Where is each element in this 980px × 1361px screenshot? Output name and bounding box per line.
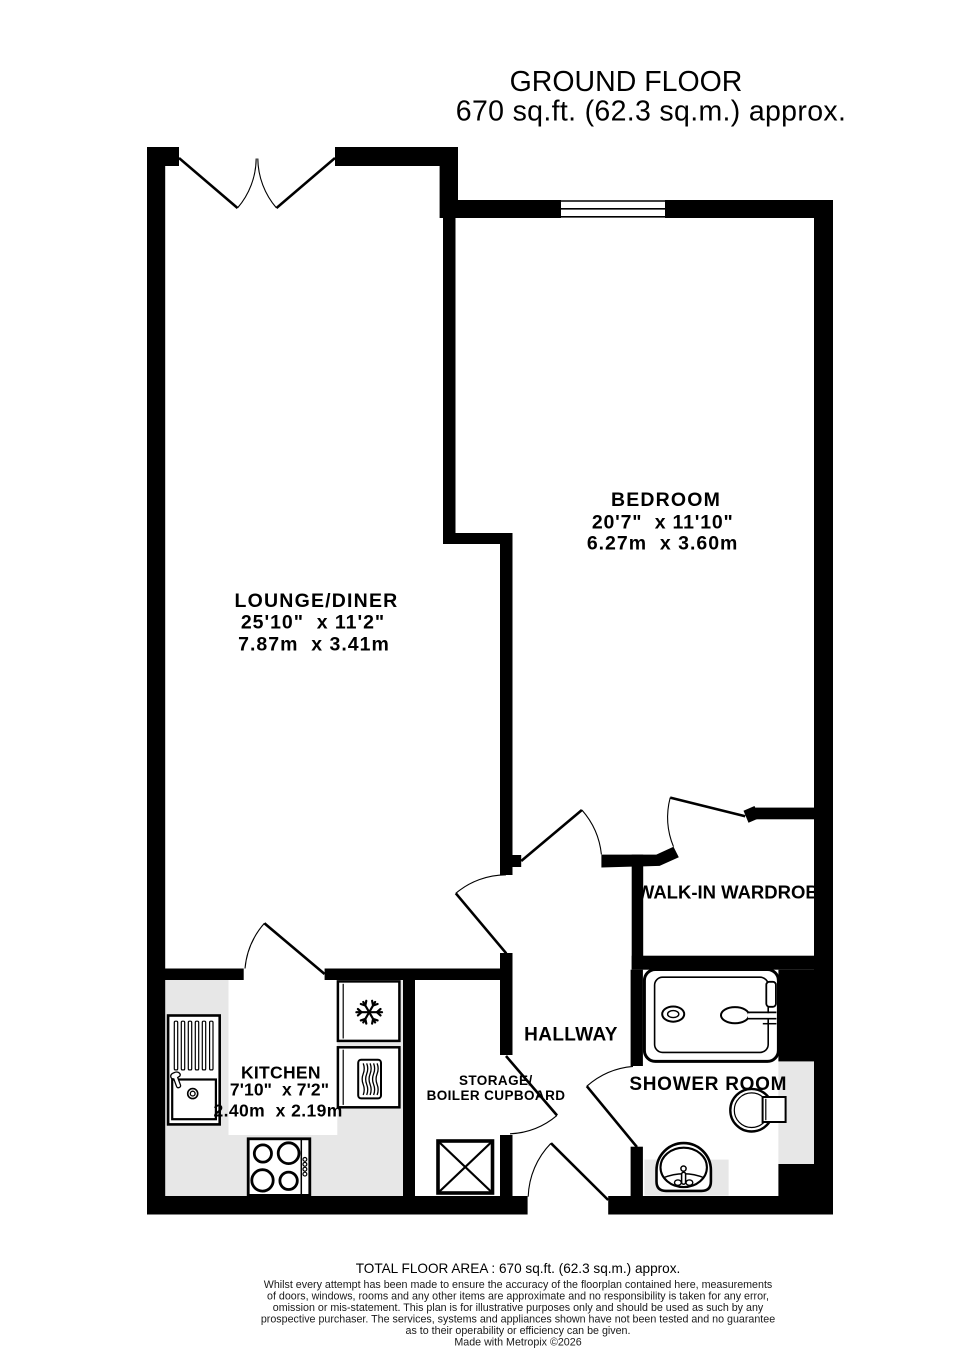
svg-text:prospective purchaser. The ser: prospective purchaser. The services, sys…: [261, 1314, 775, 1326]
svg-text:SHOWER ROOM: SHOWER ROOM: [629, 1074, 787, 1095]
svg-text:STORAGE/: STORAGE/: [459, 1073, 533, 1088]
svg-text:of doors, windows, rooms and a: of doors, windows, rooms and any other i…: [267, 1291, 769, 1303]
svg-text:2.40m x 2.19m: 2.40m x 2.19m: [213, 1100, 342, 1120]
svg-text:Whilst every attempt has been: Whilst every attempt has been made to en…: [264, 1279, 773, 1291]
svg-text:WALK-IN WARDROBE: WALK-IN WARDROBE: [637, 882, 831, 903]
svg-text:omission or mis-statement. Thi: omission or mis-statement. This plan is …: [273, 1302, 764, 1314]
svg-text:25'10" x 11'2": 25'10" x 11'2": [241, 612, 385, 634]
svg-text:670 sq.ft. (62.3 sq.m.) approx: 670 sq.ft. (62.3 sq.m.) approx.: [456, 96, 846, 128]
svg-text:LOUNGE/DINER: LOUNGE/DINER: [235, 590, 399, 612]
svg-text:20'7" x 11'10": 20'7" x 11'10": [592, 511, 734, 533]
svg-text:TOTAL FLOOR AREA : 670 sq.ft.: TOTAL FLOOR AREA : 670 sq.ft. (62.3 sq.m…: [356, 1261, 681, 1276]
svg-text:7.87m x 3.41m: 7.87m x 3.41m: [238, 634, 390, 656]
svg-text:7'10" x 7'2": 7'10" x 7'2": [230, 1080, 329, 1100]
svg-text:Made with Metropix ©2026: Made with Metropix ©2026: [454, 1337, 581, 1349]
svg-text:BOILER CUPBOARD: BOILER CUPBOARD: [427, 1088, 566, 1103]
svg-text:BEDROOM: BEDROOM: [611, 489, 721, 511]
svg-text:GROUND FLOOR: GROUND FLOOR: [510, 66, 743, 98]
svg-text:6.27m x 3.60m: 6.27m x 3.60m: [587, 533, 739, 555]
svg-text:HALLWAY: HALLWAY: [524, 1025, 618, 1046]
svg-text:as to their operability or eff: as to their operability or efficiency ca…: [406, 1325, 631, 1337]
